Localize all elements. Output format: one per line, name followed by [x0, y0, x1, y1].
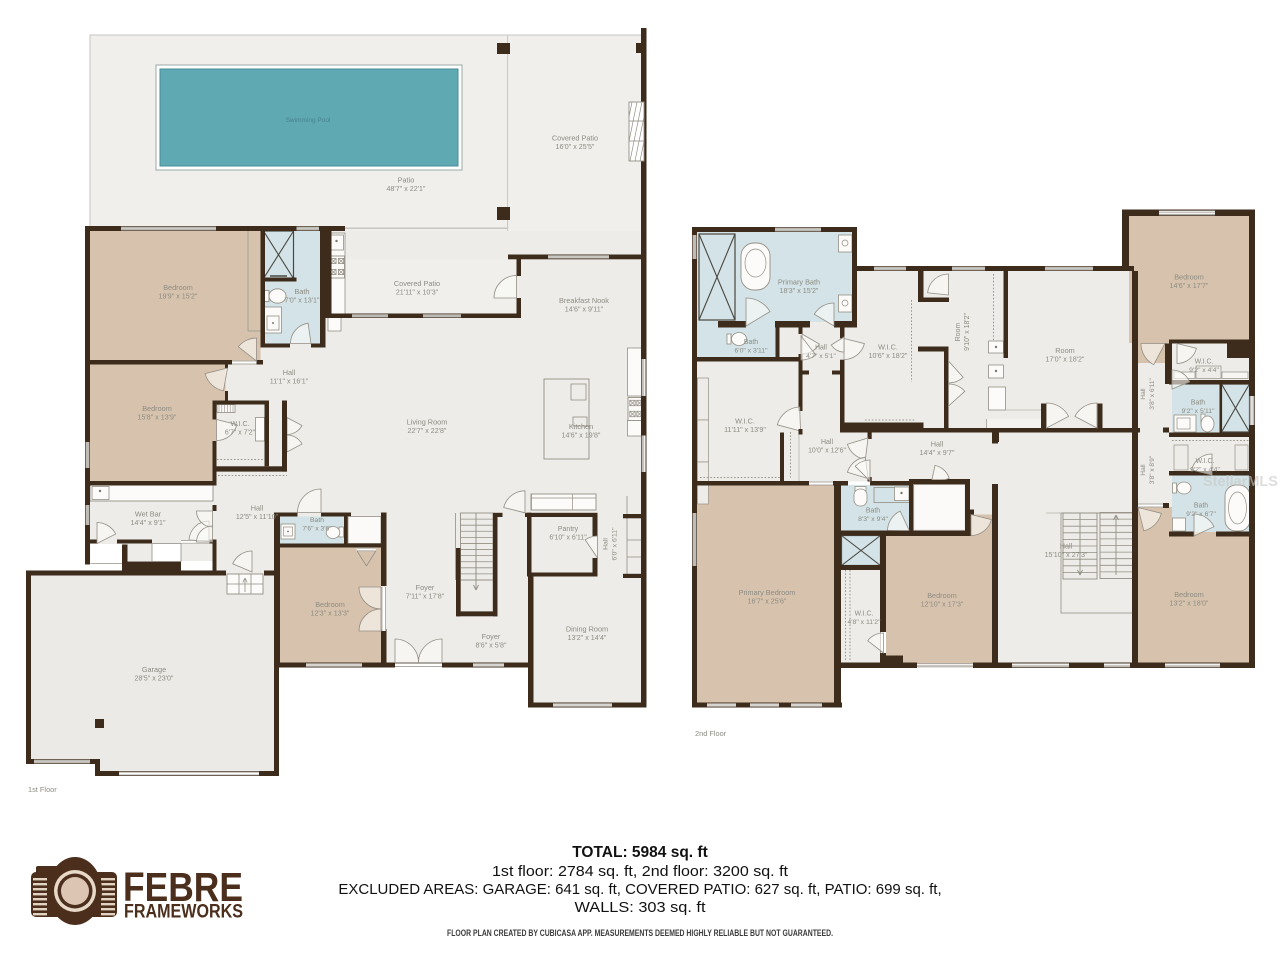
svg-text:7'0" x 13'1": 7'0" x 13'1"	[285, 296, 320, 304]
svg-text:Pantry: Pantry	[558, 526, 579, 533]
svg-text:13'2" x 18'0": 13'2" x 18'0"	[1170, 599, 1209, 607]
svg-text:Bath: Bath	[1194, 503, 1208, 510]
svg-text:Covered Patio: Covered Patio	[552, 134, 598, 143]
svg-text:10'0" x 12'6": 10'0" x 12'6"	[808, 447, 846, 454]
svg-text:FRAMEWORKS: FRAMEWORKS	[124, 902, 243, 923]
svg-text:Living Room: Living Room	[407, 418, 448, 427]
svg-text:7'11" x 17'8": 7'11" x 17'8"	[406, 592, 445, 600]
svg-text:48'7" x 22'1": 48'7" x 22'1"	[387, 185, 426, 193]
svg-text:9'2" x 5'11": 9'2" x 5'11"	[1182, 408, 1216, 415]
svg-text:28'5" x 23'0": 28'5" x 23'0"	[135, 674, 174, 682]
svg-text:Bedroom: Bedroom	[1174, 590, 1204, 599]
svg-text:14'6" x 9'11": 14'6" x 9'11"	[565, 305, 604, 313]
svg-text:Swimming Pool: Swimming Pool	[286, 117, 331, 124]
svg-text:3'8" x 8'9": 3'8" x 8'9"	[1149, 455, 1156, 484]
svg-text:21'11" x 10'3": 21'11" x 10'3"	[396, 288, 439, 296]
svg-text:9'2" x 4'4": 9'2" x 4'4"	[1189, 367, 1219, 374]
svg-text:12'5" x 11'10": 12'5" x 11'10"	[236, 513, 279, 521]
svg-text:12'10" x 17'3": 12'10" x 17'3"	[921, 600, 964, 608]
svg-text:Bath: Bath	[744, 339, 758, 346]
svg-text:1st Floor: 1st Floor	[28, 785, 57, 794]
svg-text:Hall: Hall	[1060, 542, 1073, 551]
svg-text:15'8" x 13'9": 15'8" x 13'9"	[138, 413, 177, 421]
svg-text:8'6" x 5'8": 8'6" x 5'8"	[475, 641, 506, 649]
svg-text:Hall: Hall	[1140, 464, 1147, 476]
svg-text:Breakfast Nook: Breakfast Nook	[559, 296, 609, 305]
svg-text:9'2" x 4'4": 9'2" x 4'4"	[1190, 466, 1220, 473]
svg-text:3'8" x 6'11": 3'8" x 6'11"	[1149, 378, 1156, 410]
svg-text:6'7" x 7'2": 6'7" x 7'2"	[225, 429, 256, 436]
svg-text:13'2" x 14'4": 13'2" x 14'4"	[568, 634, 607, 642]
svg-text:8'3" x 9'4": 8'3" x 9'4"	[858, 516, 888, 523]
svg-text:Room: Room	[1055, 346, 1074, 355]
svg-text:14'4" x 9'1": 14'4" x 9'1"	[131, 519, 166, 527]
svg-text:Hall: Hall	[1140, 388, 1147, 400]
svg-text:14'4" x 9'7": 14'4" x 9'7"	[920, 449, 955, 457]
svg-text:Primary Bath: Primary Bath	[778, 278, 820, 287]
svg-text:9'2" x 6'7": 9'2" x 6'7"	[1186, 511, 1216, 518]
svg-text:18'3" x 15'2": 18'3" x 15'2"	[780, 287, 819, 295]
svg-text:W.I.C.: W.I.C.	[1196, 458, 1215, 465]
svg-text:Bath: Bath	[866, 508, 880, 515]
svg-text:Dining Room: Dining Room	[566, 625, 608, 634]
svg-text:19'9" x 15'2": 19'9" x 15'2"	[159, 292, 198, 300]
svg-text:11'11" x 13'9": 11'11" x 13'9"	[724, 426, 766, 434]
svg-text:EXCLUDED AREAS: GARAGE: 641 sq: EXCLUDED AREAS: GARAGE: 641 sq. ft, COVE…	[338, 881, 941, 898]
svg-text:4'8" x 11'2": 4'8" x 11'2"	[848, 619, 882, 626]
svg-text:6'0" x 3'11": 6'0" x 3'11"	[735, 347, 769, 354]
svg-text:Bedroom: Bedroom	[927, 591, 957, 600]
svg-text:Patio: Patio	[398, 176, 415, 185]
svg-text:Bath: Bath	[310, 517, 324, 524]
svg-text:W.I.C.: W.I.C.	[855, 611, 874, 618]
svg-text:FLOOR PLAN CREATED BY CUBICASA: FLOOR PLAN CREATED BY CUBICASA APP. MEAS…	[447, 928, 833, 939]
svg-text:4'7" x 5'1": 4'7" x 5'1"	[806, 353, 836, 360]
svg-text:2nd Floor: 2nd Floor	[695, 729, 727, 738]
svg-text:Wet Bar: Wet Bar	[135, 510, 162, 519]
svg-text:17'0" x 18'2": 17'0" x 18'2"	[1046, 355, 1085, 363]
svg-text:6'0" x 6'11": 6'0" x 6'11"	[612, 527, 619, 561]
svg-text:Bedroom: Bedroom	[1174, 273, 1204, 282]
svg-text:Hall: Hall	[603, 538, 610, 550]
svg-text:14'6" x 17'7": 14'6" x 17'7"	[1170, 282, 1209, 290]
svg-text:Bedroom: Bedroom	[163, 283, 193, 292]
svg-text:14'6" x 19'8": 14'6" x 19'8"	[562, 431, 601, 439]
svg-text:TOTAL: 5984 sq. ft: TOTAL: 5984 sq. ft	[572, 844, 708, 861]
svg-text:Garage: Garage	[142, 665, 166, 674]
svg-text:Covered Patio: Covered Patio	[394, 279, 440, 288]
svg-text:Hall: Hall	[815, 345, 827, 352]
svg-text:Bath: Bath	[294, 287, 309, 296]
svg-text:Hall: Hall	[821, 439, 834, 446]
svg-text:Hall: Hall	[251, 504, 264, 513]
svg-text:10'6" x 18'2": 10'6" x 18'2"	[869, 352, 908, 360]
svg-text:16'0" x 25'5": 16'0" x 25'5"	[556, 143, 595, 151]
svg-text:W.I.C.: W.I.C.	[1195, 359, 1214, 366]
svg-text:22'7" x 22'8": 22'7" x 22'8"	[408, 427, 447, 435]
svg-text:W.I.C.: W.I.C.	[735, 417, 755, 426]
svg-text:Room: Room	[955, 323, 962, 342]
svg-text:6'10" x 6'11": 6'10" x 6'11"	[549, 534, 587, 541]
svg-text:Hall: Hall	[283, 368, 296, 377]
svg-text:1st floor: 2784 sq. ft, 2nd fl: 1st floor: 2784 sq. ft, 2nd floor: 3200 …	[492, 863, 789, 880]
svg-text:Foyer: Foyer	[482, 632, 501, 641]
svg-text:15'10" x 27'3": 15'10" x 27'3"	[1045, 551, 1088, 559]
svg-text:Bedroom: Bedroom	[315, 600, 345, 609]
svg-text:WALLS: 303 sq. ft: WALLS: 303 sq. ft	[575, 899, 707, 916]
svg-text:Bath: Bath	[1191, 400, 1205, 407]
svg-text:7'6" x 3'6": 7'6" x 3'6"	[302, 525, 332, 532]
svg-text:11'1" x 16'1": 11'1" x 16'1"	[270, 377, 309, 385]
svg-text:Kitchen: Kitchen	[569, 422, 593, 431]
svg-text:W.I.C.: W.I.C.	[230, 421, 249, 428]
svg-text:Bedroom: Bedroom	[142, 404, 172, 413]
svg-text:Foyer: Foyer	[416, 583, 435, 592]
svg-text:9'10" x 18'2": 9'10" x 18'2"	[964, 313, 971, 351]
svg-text:StellarMLS: StellarMLS	[1203, 474, 1278, 490]
svg-text:Hall: Hall	[931, 440, 944, 449]
svg-text:Primary Bedroom: Primary Bedroom	[739, 588, 796, 597]
svg-text:12'3" x 13'3": 12'3" x 13'3"	[311, 609, 350, 617]
svg-text:16'7" x 25'6": 16'7" x 25'6"	[748, 597, 787, 605]
svg-text:W.I.C.: W.I.C.	[878, 343, 898, 352]
